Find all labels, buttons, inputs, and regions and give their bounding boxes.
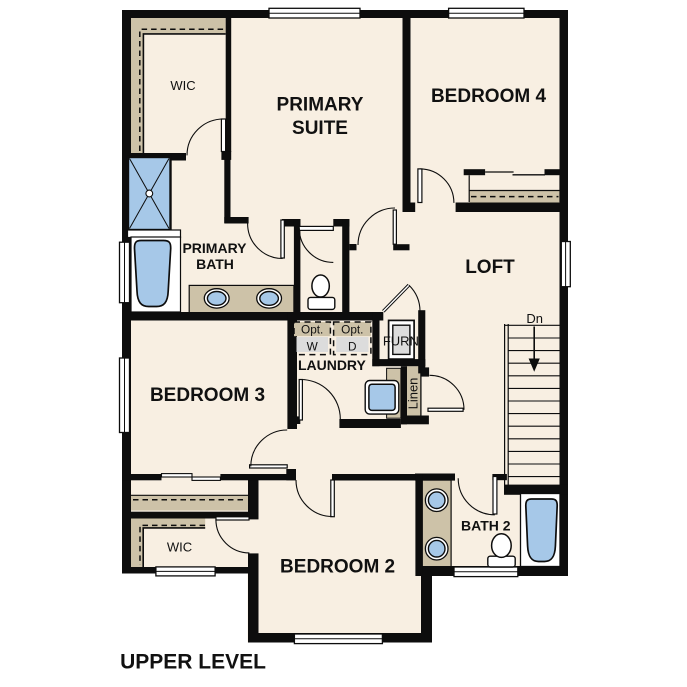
svg-text:WIC: WIC: [167, 540, 192, 555]
svg-text:UPPER LEVEL: UPPER LEVEL: [120, 651, 266, 674]
svg-text:Linen: Linen: [406, 378, 421, 410]
svg-text:Dn: Dn: [526, 311, 543, 326]
svg-text:FURN: FURN: [383, 333, 419, 348]
svg-text:BATH: BATH: [196, 256, 234, 272]
svg-text:WIC: WIC: [170, 78, 195, 93]
svg-text:BEDROOM 3: BEDROOM 3: [150, 385, 265, 406]
svg-text:W: W: [307, 339, 319, 353]
svg-text:PRIMARY: PRIMARY: [277, 95, 364, 116]
svg-text:Opt.: Opt.: [301, 322, 323, 336]
svg-text:LOFT: LOFT: [465, 257, 515, 278]
svg-text:BEDROOM 4: BEDROOM 4: [431, 86, 547, 107]
svg-text:BATH 2: BATH 2: [461, 518, 511, 534]
svg-text:BEDROOM 2: BEDROOM 2: [280, 556, 395, 577]
svg-text:PRIMARY: PRIMARY: [182, 240, 247, 256]
svg-text:D: D: [348, 339, 357, 353]
svg-text:SUITE: SUITE: [292, 118, 348, 139]
svg-text:LAUNDRY: LAUNDRY: [298, 357, 367, 373]
svg-text:Opt.: Opt.: [341, 322, 363, 336]
